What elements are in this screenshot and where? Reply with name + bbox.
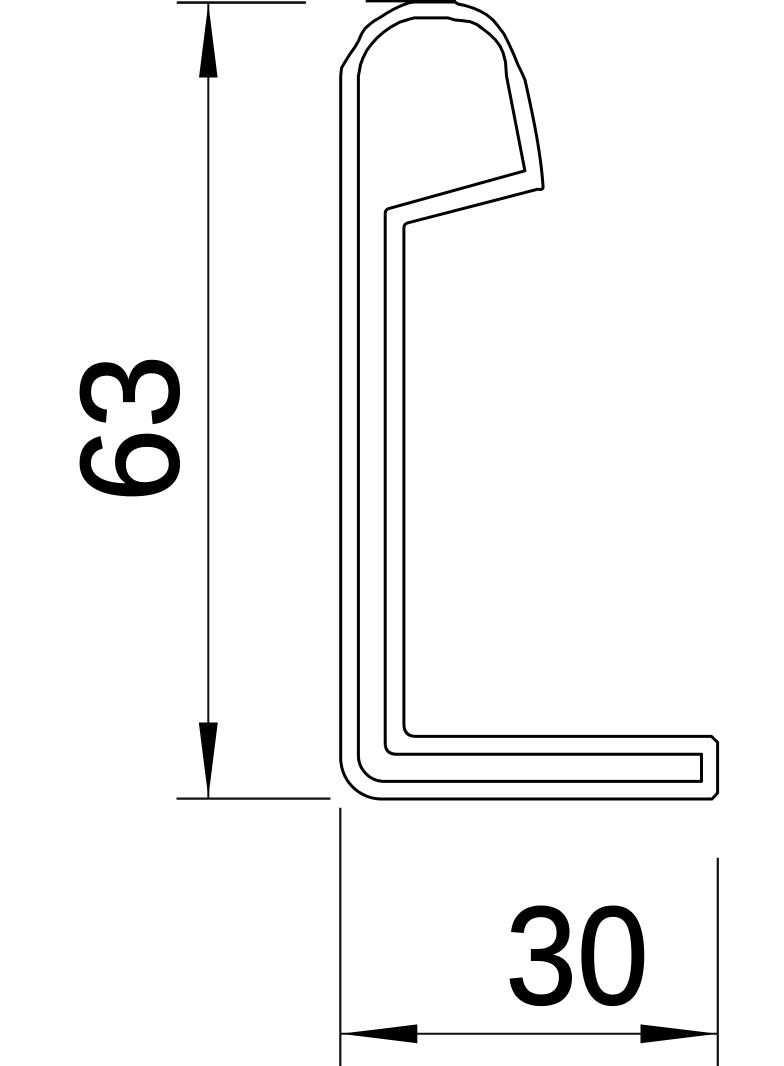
svg-text:30: 30: [505, 877, 648, 1034]
svg-text:63: 63: [51, 355, 208, 503]
